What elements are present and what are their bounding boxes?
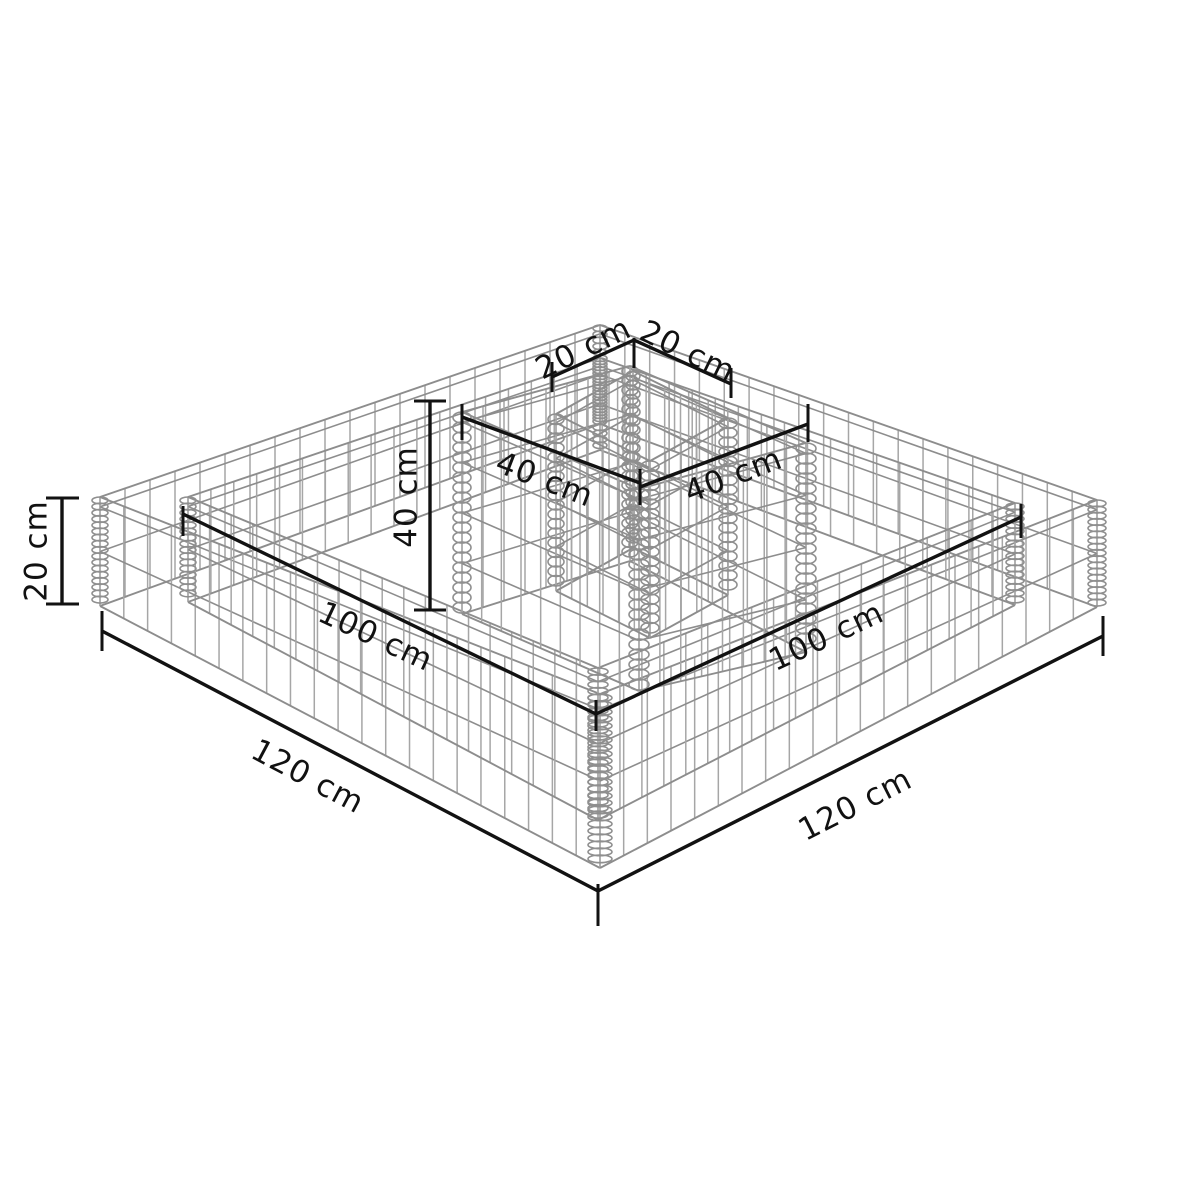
dim-label-tower-height: 40 cm xyxy=(389,446,425,548)
gabion-planter-dimension-drawing: 20 cm 40 cm 20 cm 20 cm 40 cm 40 cm 100 … xyxy=(0,0,1200,1200)
dim-label-outer-edge-left: 120 cm xyxy=(245,732,370,821)
dim-label-outer-height: 20 cm xyxy=(19,500,55,602)
dim-label-tower-base-left: 40 cm xyxy=(491,445,599,515)
dimension-labels: 20 cm 40 cm 20 cm 20 cm 40 cm 40 cm 100 … xyxy=(19,310,918,848)
dim-label-tower-top-left: 20 cm xyxy=(530,310,637,387)
diagram-page: 20 cm 40 cm 20 cm 20 cm 40 cm 40 cm 100 … xyxy=(0,0,1200,1200)
dim-label-outer-edge-right: 120 cm xyxy=(793,761,918,849)
